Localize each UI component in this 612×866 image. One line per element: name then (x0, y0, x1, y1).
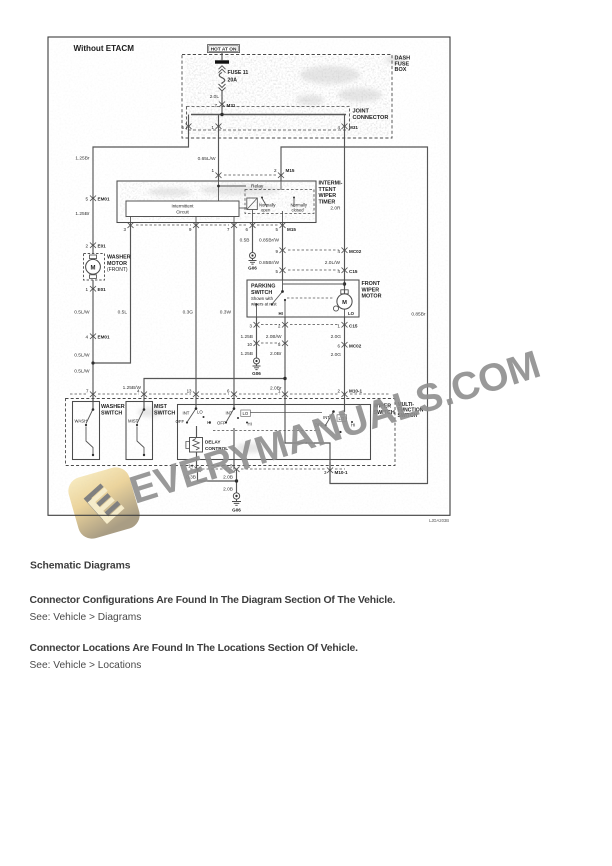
svg-text:0.5L/W: 0.5L/W (74, 369, 90, 375)
svg-text:2.0B: 2.0B (223, 487, 233, 493)
svg-text:OFF: OFF (217, 421, 226, 426)
svg-text:2.0L/W: 2.0L/W (325, 260, 341, 266)
svg-text:SWITCH: SWITCH (101, 410, 122, 416)
svg-text:JOINT: JOINT (353, 109, 370, 115)
svg-text:1: 1 (85, 287, 88, 292)
svg-text:0.65L/W: 0.65L/W (198, 156, 216, 162)
svg-text:1.25Br: 1.25Br (75, 156, 90, 162)
svg-text:SWITCH: SWITCH (251, 290, 272, 296)
svg-text:C15: C15 (349, 324, 358, 329)
svg-text:1.25B: 1.25B (240, 351, 253, 357)
svg-text:2.0Br: 2.0Br (270, 351, 282, 357)
svg-text:0.5L/W: 0.5L/W (74, 310, 90, 316)
svg-text:LJDA203B: LJDA203B (429, 518, 449, 523)
svg-text:Shown with: Shown with (251, 296, 274, 301)
svg-text:M31: M31 (227, 103, 236, 108)
svg-text:G06: G06 (248, 266, 257, 271)
svg-text:0.5B: 0.5B (240, 238, 250, 244)
svg-text:G06: G06 (232, 508, 241, 513)
svg-text:Intermittent: Intermittent (172, 203, 195, 208)
svg-text:Connector Locations Are Found: Connector Locations Are Found In The Loc… (30, 643, 359, 654)
svg-text:0.3W: 0.3W (220, 310, 232, 316)
svg-text:20A: 20A (228, 78, 238, 84)
svg-text:MOTOR: MOTOR (107, 261, 127, 267)
svg-text:1.25Br: 1.25Br (75, 211, 90, 217)
svg-text:2.0G: 2.0G (331, 334, 342, 340)
svg-text:INT: INT (183, 411, 190, 416)
svg-text:INTERMI-: INTERMI- (319, 181, 343, 187)
svg-text:G06: G06 (252, 371, 261, 376)
svg-text:10: 10 (247, 342, 252, 347)
svg-text:M31: M31 (349, 125, 358, 130)
svg-text:2.0G: 2.0G (331, 352, 342, 358)
svg-text:2.0B/W: 2.0B/W (266, 334, 282, 340)
svg-text:M15: M15 (287, 227, 296, 232)
svg-text:See: Vehicle > Diagrams: See: Vehicle > Diagrams (30, 612, 142, 623)
svg-text:closed: closed (292, 208, 305, 213)
svg-text:0.5L/W: 0.5L/W (74, 353, 90, 359)
svg-text:TTENT: TTENT (319, 187, 337, 193)
svg-text:M10-1: M10-1 (335, 470, 348, 475)
svg-text:WASH: WASH (75, 419, 88, 424)
svg-text:2.0L: 2.0L (210, 94, 220, 100)
svg-text:(FRONT): (FRONT) (107, 267, 128, 273)
svg-text:WASHER: WASHER (101, 404, 125, 410)
svg-text:1: 1 (211, 168, 214, 173)
svg-text:0.85Br: 0.85Br (411, 312, 426, 318)
svg-text:Relay: Relay (251, 184, 264, 190)
svg-text:7: 7 (214, 103, 217, 108)
svg-text:M: M (91, 265, 96, 271)
svg-text:HOT AT ON: HOT AT ON (211, 47, 237, 53)
svg-text:HI: HI (279, 311, 283, 316)
svg-text:PARKING: PARKING (251, 284, 275, 290)
svg-text:FUSE 11: FUSE 11 (228, 70, 249, 76)
svg-text:SWITCH: SWITCH (154, 410, 175, 416)
svg-text:M10-1: M10-1 (349, 389, 362, 394)
svg-text:M: M (342, 300, 347, 306)
svg-text:MOTOR: MOTOR (362, 294, 382, 300)
svg-text:WIPER: WIPER (362, 287, 380, 293)
svg-text:Connector Configurations Are F: Connector Configurations Are Found In Th… (30, 595, 396, 606)
svg-text:C15: C15 (349, 269, 358, 274)
svg-text:EM01: EM01 (98, 196, 110, 201)
svg-text:13: 13 (187, 389, 192, 394)
svg-text:CONNECTOR: CONNECTOR (353, 115, 389, 121)
svg-text:2: 2 (274, 168, 277, 173)
svg-text:Circuit: Circuit (176, 209, 189, 214)
svg-text:2.0R: 2.0R (330, 206, 341, 212)
svg-text:WIPER: WIPER (319, 193, 337, 199)
svg-text:BOX: BOX (395, 67, 407, 73)
svg-text:open: open (261, 208, 271, 213)
svg-text:2: 2 (85, 243, 88, 248)
svg-text:LO: LO (197, 410, 203, 415)
svg-text:LO: LO (348, 311, 355, 316)
svg-text:E01: E01 (98, 243, 107, 248)
svg-text:E01: E01 (98, 287, 107, 292)
svg-text:0.5L: 0.5L (118, 310, 128, 316)
svg-text:WASHER: WASHER (107, 255, 131, 261)
svg-text:MC02: MC02 (349, 249, 362, 254)
svg-text:Schematic Diagrams: Schematic Diagrams (30, 561, 131, 572)
svg-text:HI: HI (248, 422, 252, 427)
svg-text:0.85Br/W: 0.85Br/W (259, 260, 279, 266)
svg-text:OFF: OFF (176, 419, 185, 424)
svg-text:TIMER: TIMER (319, 199, 336, 205)
svg-text:4: 4 (85, 334, 88, 339)
svg-text:LO: LO (243, 411, 249, 416)
svg-text:M15: M15 (286, 168, 295, 173)
svg-text:See: Vehicle > Locations: See: Vehicle > Locations (30, 660, 142, 671)
svg-text:FRONT: FRONT (362, 281, 381, 287)
svg-text:EM01: EM01 (98, 334, 110, 339)
svg-text:1.25B: 1.25B (240, 334, 253, 340)
svg-text:0.3G: 0.3G (183, 310, 194, 316)
svg-text:5: 5 (85, 196, 88, 201)
svg-text:Without ETACM: Without ETACM (74, 44, 135, 53)
svg-text:0.85Br/W: 0.85Br/W (259, 238, 279, 244)
svg-text:MC02: MC02 (349, 344, 362, 349)
svg-text:MIST: MIST (154, 404, 168, 410)
